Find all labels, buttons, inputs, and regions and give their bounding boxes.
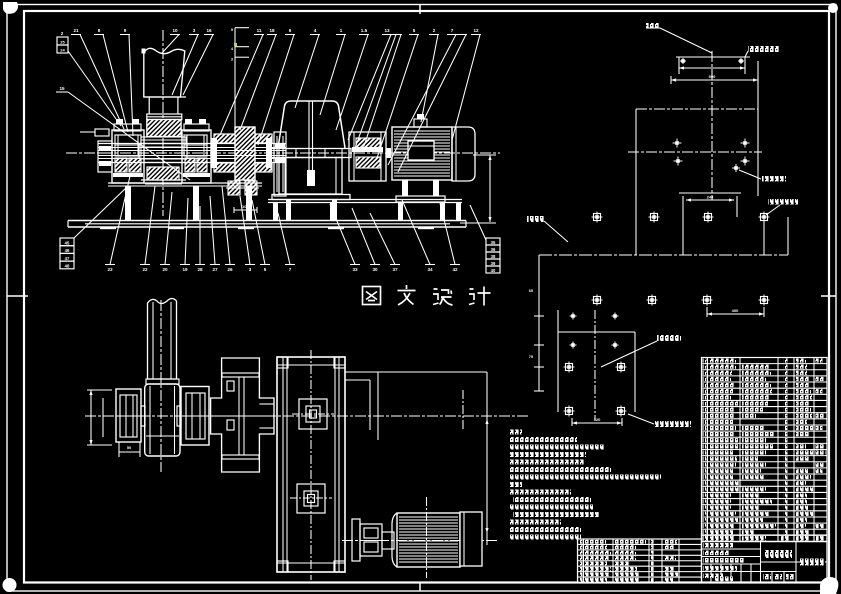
svg-text:50: 50 — [127, 446, 131, 450]
svg-text:4: 4 — [314, 28, 317, 33]
svg-text:25: 25 — [60, 40, 65, 45]
svg-text:1.5: 1.5 — [361, 28, 368, 33]
svg-text:24: 24 — [60, 48, 65, 53]
svg-text:400: 400 — [732, 308, 739, 313]
svg-text:18: 18 — [269, 28, 275, 33]
svg-text:12: 12 — [473, 28, 479, 33]
svg-text:35: 35 — [491, 240, 496, 245]
svg-text:3: 3 — [231, 58, 233, 62]
svg-text:36: 36 — [491, 247, 496, 252]
svg-text:1: 1 — [340, 28, 343, 33]
svg-text:13: 13 — [384, 28, 390, 33]
svg-text:8: 8 — [98, 28, 101, 33]
svg-text:7: 7 — [451, 28, 454, 33]
svg-text:2: 2 — [61, 31, 64, 36]
svg-text:590: 590 — [709, 74, 716, 79]
svg-text:21: 21 — [73, 28, 79, 33]
svg-text:46: 46 — [65, 248, 70, 253]
svg-text:5: 5 — [264, 267, 267, 272]
svg-text:10: 10 — [172, 28, 178, 33]
svg-text:3: 3 — [249, 267, 252, 272]
svg-text:42: 42 — [452, 267, 458, 272]
svg-text:30: 30 — [372, 267, 378, 272]
svg-text:75: 75 — [529, 355, 533, 359]
svg-text:19: 19 — [182, 267, 188, 272]
svg-text:16: 16 — [206, 28, 212, 33]
svg-text:40: 40 — [491, 268, 496, 273]
svg-text:27: 27 — [212, 267, 218, 272]
svg-text:39: 39 — [491, 261, 496, 266]
svg-text:33: 33 — [352, 267, 358, 272]
svg-text:34: 34 — [427, 267, 433, 272]
svg-text:11: 11 — [257, 28, 262, 33]
svg-text:65: 65 — [529, 289, 533, 293]
svg-text:320: 320 — [594, 417, 601, 422]
svg-text:28: 28 — [197, 267, 203, 272]
svg-text:20: 20 — [162, 267, 168, 272]
svg-text:3: 3 — [193, 28, 196, 33]
svg-text:2: 2 — [433, 28, 436, 33]
svg-text:240: 240 — [707, 195, 714, 200]
svg-text:37: 37 — [392, 267, 398, 272]
svg-text:45: 45 — [65, 241, 70, 246]
svg-text:7: 7 — [289, 267, 292, 272]
svg-text:5: 5 — [231, 28, 233, 32]
svg-text:48: 48 — [65, 264, 70, 269]
svg-text:47: 47 — [65, 256, 70, 261]
svg-text:22: 22 — [142, 267, 148, 272]
svg-text:23: 23 — [107, 267, 113, 272]
svg-text:38: 38 — [491, 254, 496, 259]
svg-text:26: 26 — [227, 267, 233, 272]
svg-text:5: 5 — [413, 28, 416, 33]
svg-text:9: 9 — [124, 28, 127, 33]
svg-text:15: 15 — [59, 86, 65, 91]
svg-text:6: 6 — [289, 28, 292, 33]
